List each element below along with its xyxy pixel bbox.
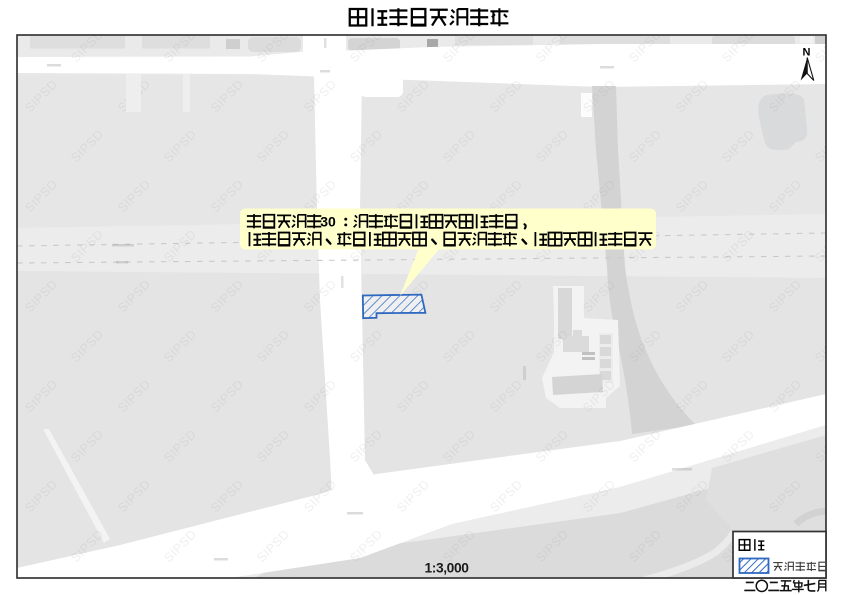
svg-text:N: N [803, 47, 811, 59]
svg-text:1:3,000: 1:3,000 [425, 561, 470, 576]
svg-text:30: 30 [320, 214, 336, 230]
